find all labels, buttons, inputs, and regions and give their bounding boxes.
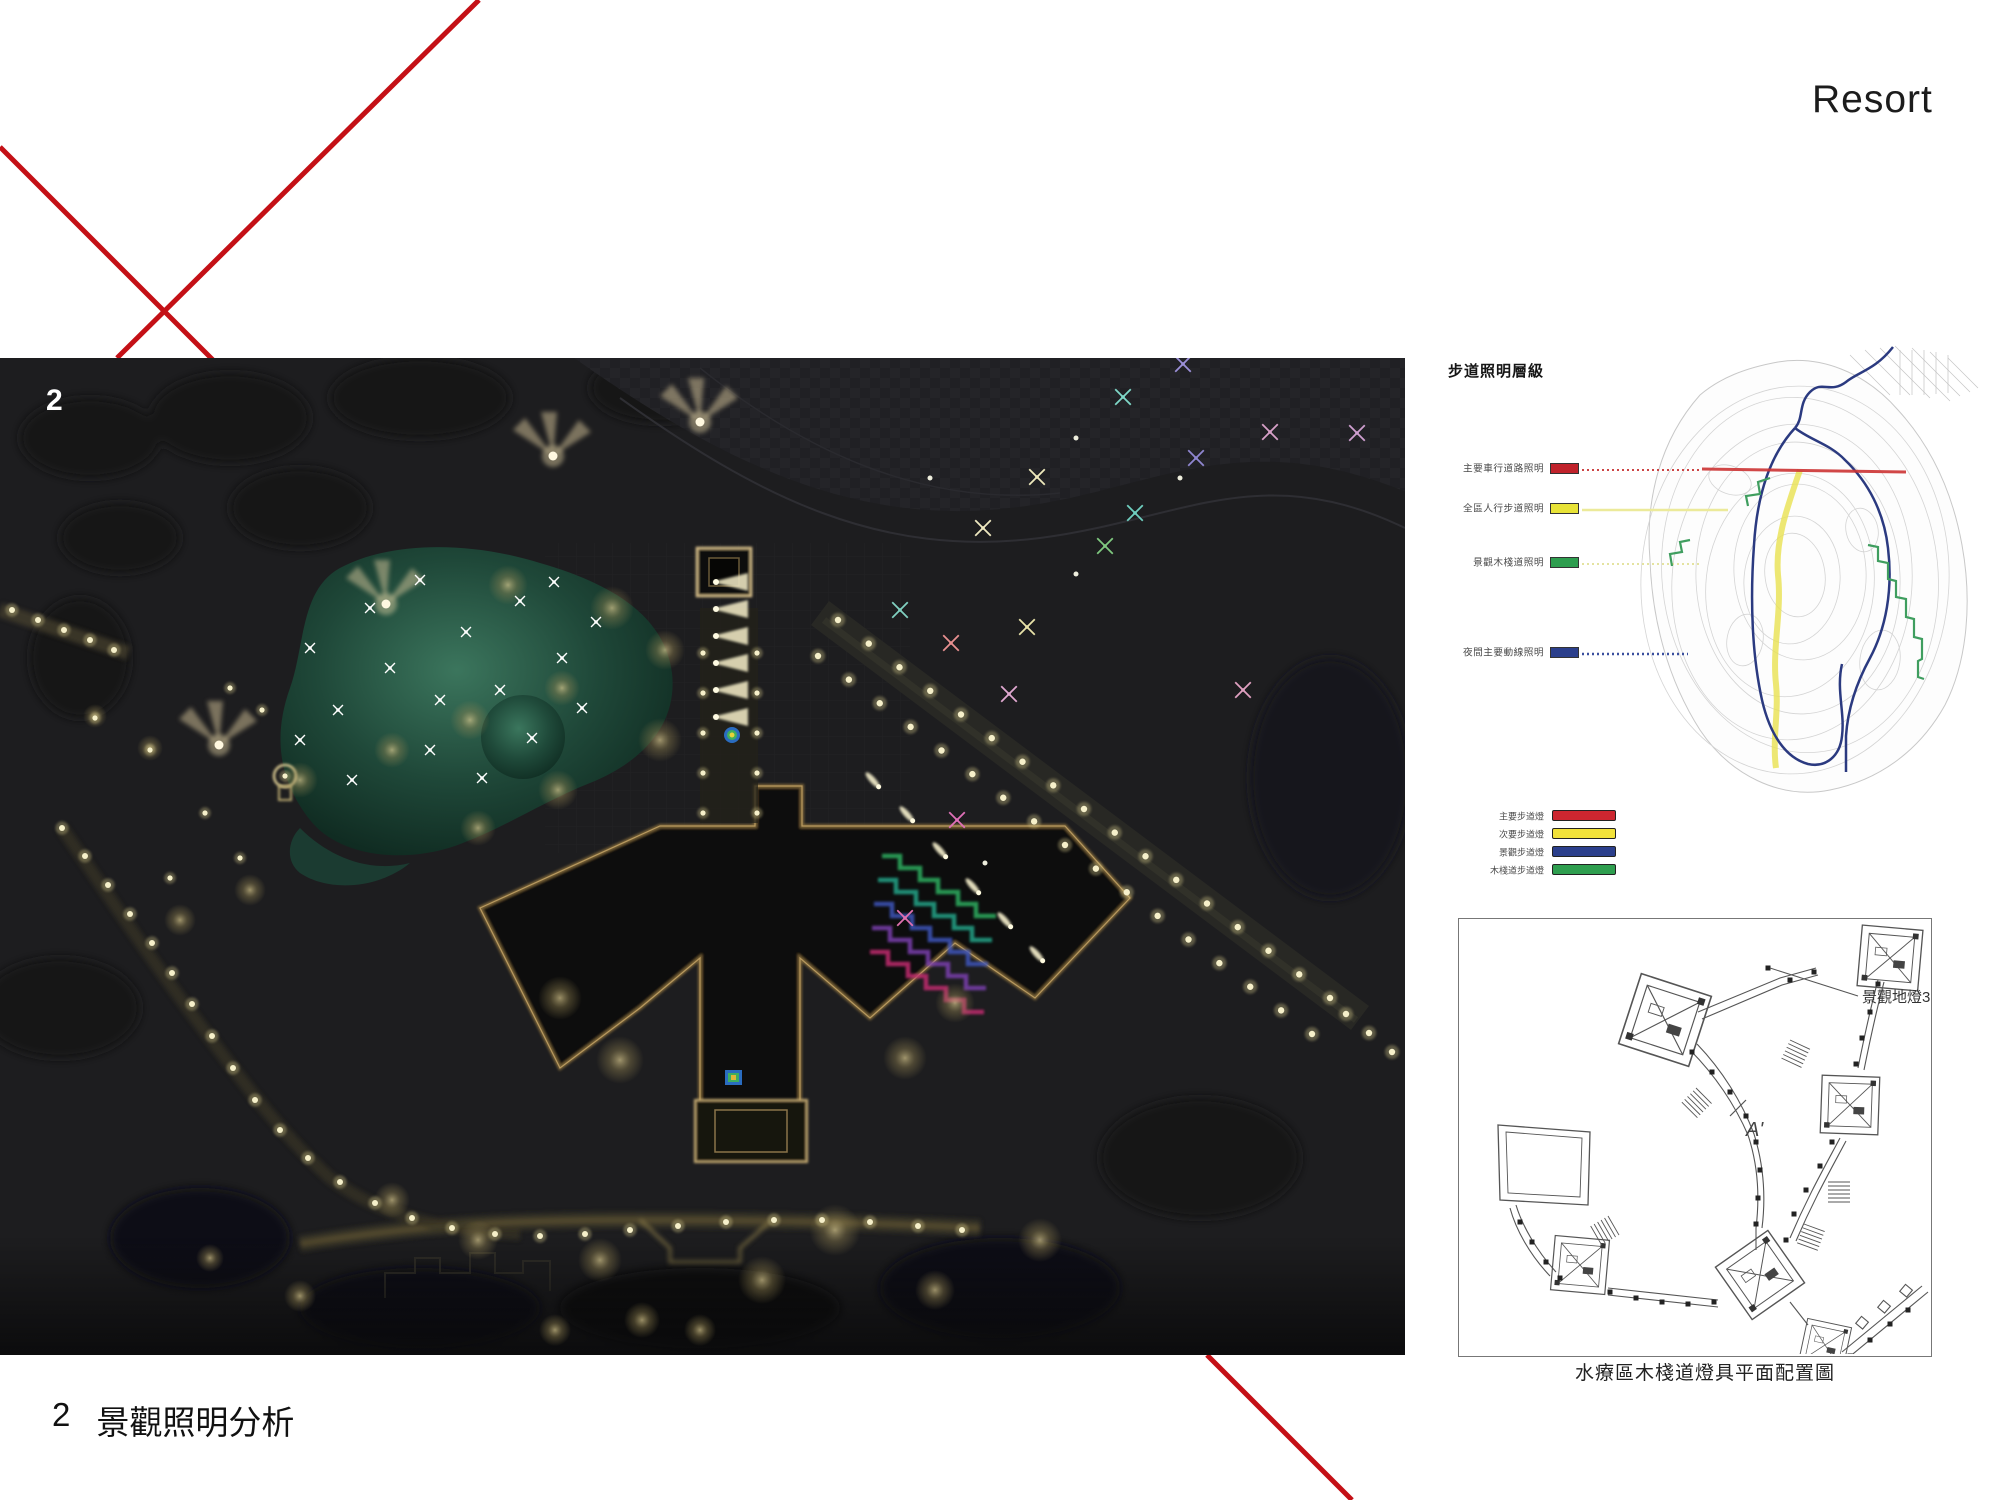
fixture-legend-swatch bbox=[1552, 810, 1616, 821]
plan-walkways bbox=[1498, 968, 1928, 1354]
night-scene-svg bbox=[0, 358, 1405, 1355]
slide-caption-text: 景觀照明分析 bbox=[96, 1396, 294, 1444]
fixture-legend-label: 主要步道燈 bbox=[1458, 809, 1544, 823]
fixture-legend-label: 景觀步道燈 bbox=[1458, 845, 1544, 859]
slide-caption: 2 景觀照明分析 bbox=[52, 1396, 294, 1444]
plan-fixture-dots bbox=[1518, 966, 1911, 1355]
spa-plan-caption: 水療區木棧道燈具平面配置圖 bbox=[1530, 1358, 1880, 1385]
figure-number-overlay: 2 bbox=[46, 384, 63, 418]
night-lighting-rendering bbox=[0, 358, 1405, 1355]
fixture-legend-item: 木棧道步道燈 bbox=[1448, 862, 1616, 877]
fixture-legend-label: 木棧道步道燈 bbox=[1458, 863, 1544, 877]
fixture-legend-item: 主要步道燈 bbox=[1448, 808, 1616, 823]
fixture-legend-label: 次要步道燈 bbox=[1458, 827, 1544, 841]
fixture-legend-item: 景觀步道燈 bbox=[1448, 844, 1616, 859]
contour-route-map bbox=[1430, 340, 2000, 810]
fixture-legend-swatch bbox=[1552, 828, 1616, 839]
spa-plan-drawing: 景觀地燈3 A' bbox=[1460, 920, 1930, 1354]
section-marker: A' bbox=[1745, 1119, 1764, 1141]
fixture-legend-swatch bbox=[1552, 864, 1616, 875]
presentation-slide: Resort bbox=[0, 0, 2000, 1500]
fixture-legend-item: 次要步道燈 bbox=[1448, 826, 1616, 841]
slide-caption-number: 2 bbox=[52, 1396, 70, 1444]
fixture-legend-swatch bbox=[1552, 846, 1616, 857]
plan-annotation: 景觀地燈3 bbox=[1862, 989, 1930, 1006]
page-title: Resort bbox=[1812, 78, 1933, 122]
